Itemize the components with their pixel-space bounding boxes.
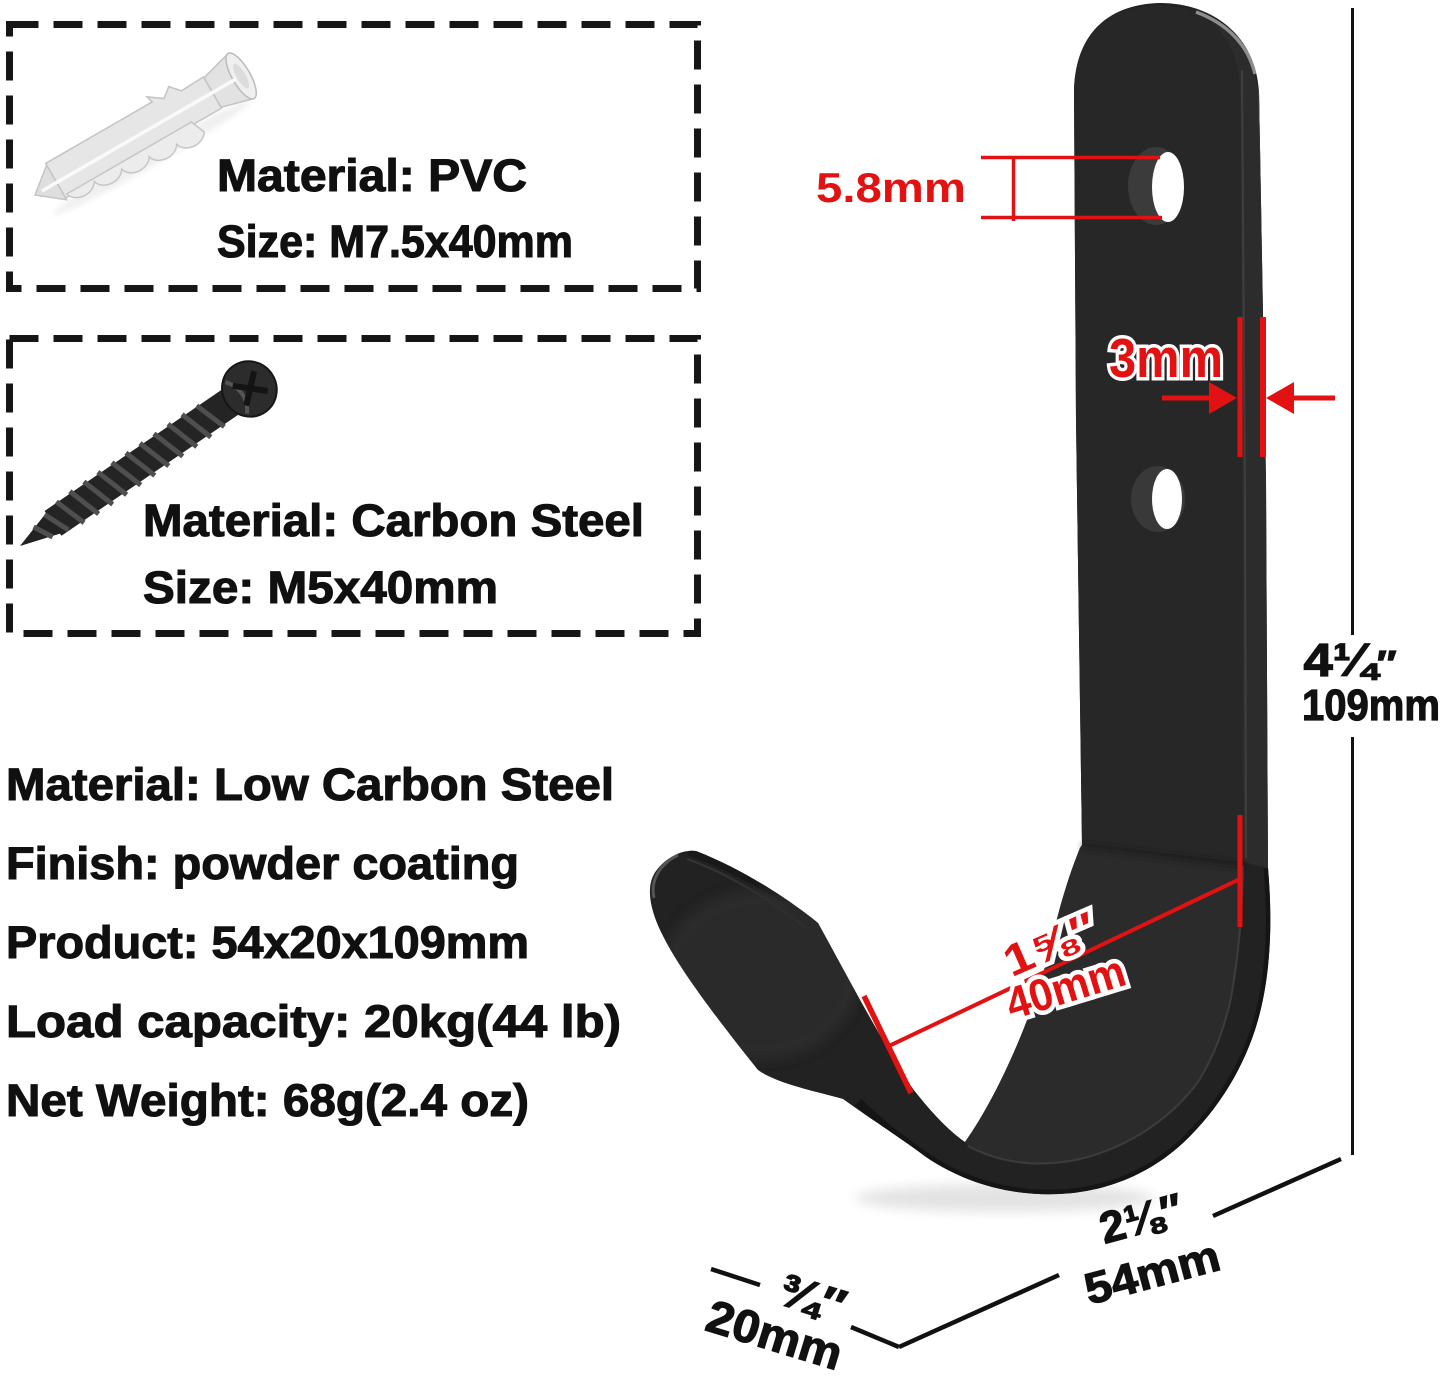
svg-text:5.8mm: 5.8mm [816, 164, 966, 211]
svg-text:4¼″: 4¼″ [1304, 634, 1397, 686]
svg-text:3mm: 3mm [1109, 327, 1223, 389]
svg-text:Size: M7.5x40mm: Size: M7.5x40mm [217, 216, 573, 267]
svg-text:Product: 54x20x109mm: Product: 54x20x109mm [6, 917, 529, 968]
svg-text:Material: Low Carbon Steel: Material: Low Carbon Steel [6, 759, 614, 810]
svg-text:Material: Carbon Steel: Material: Carbon Steel [143, 495, 644, 546]
svg-text:Size: M5x40mm: Size: M5x40mm [143, 562, 498, 613]
svg-text:Load capacity: 20kg(44 lb): Load capacity: 20kg(44 lb) [6, 996, 621, 1047]
svg-text:Net Weight: 68g(2.4 oz): Net Weight: 68g(2.4 oz) [6, 1075, 529, 1126]
svg-text:Material: PVC: Material: PVC [217, 150, 527, 201]
svg-text:Finish: powder coating: Finish: powder coating [6, 838, 519, 889]
svg-text:54mm: 54mm [1079, 1231, 1225, 1314]
svg-text:109mm: 109mm [1302, 681, 1440, 730]
